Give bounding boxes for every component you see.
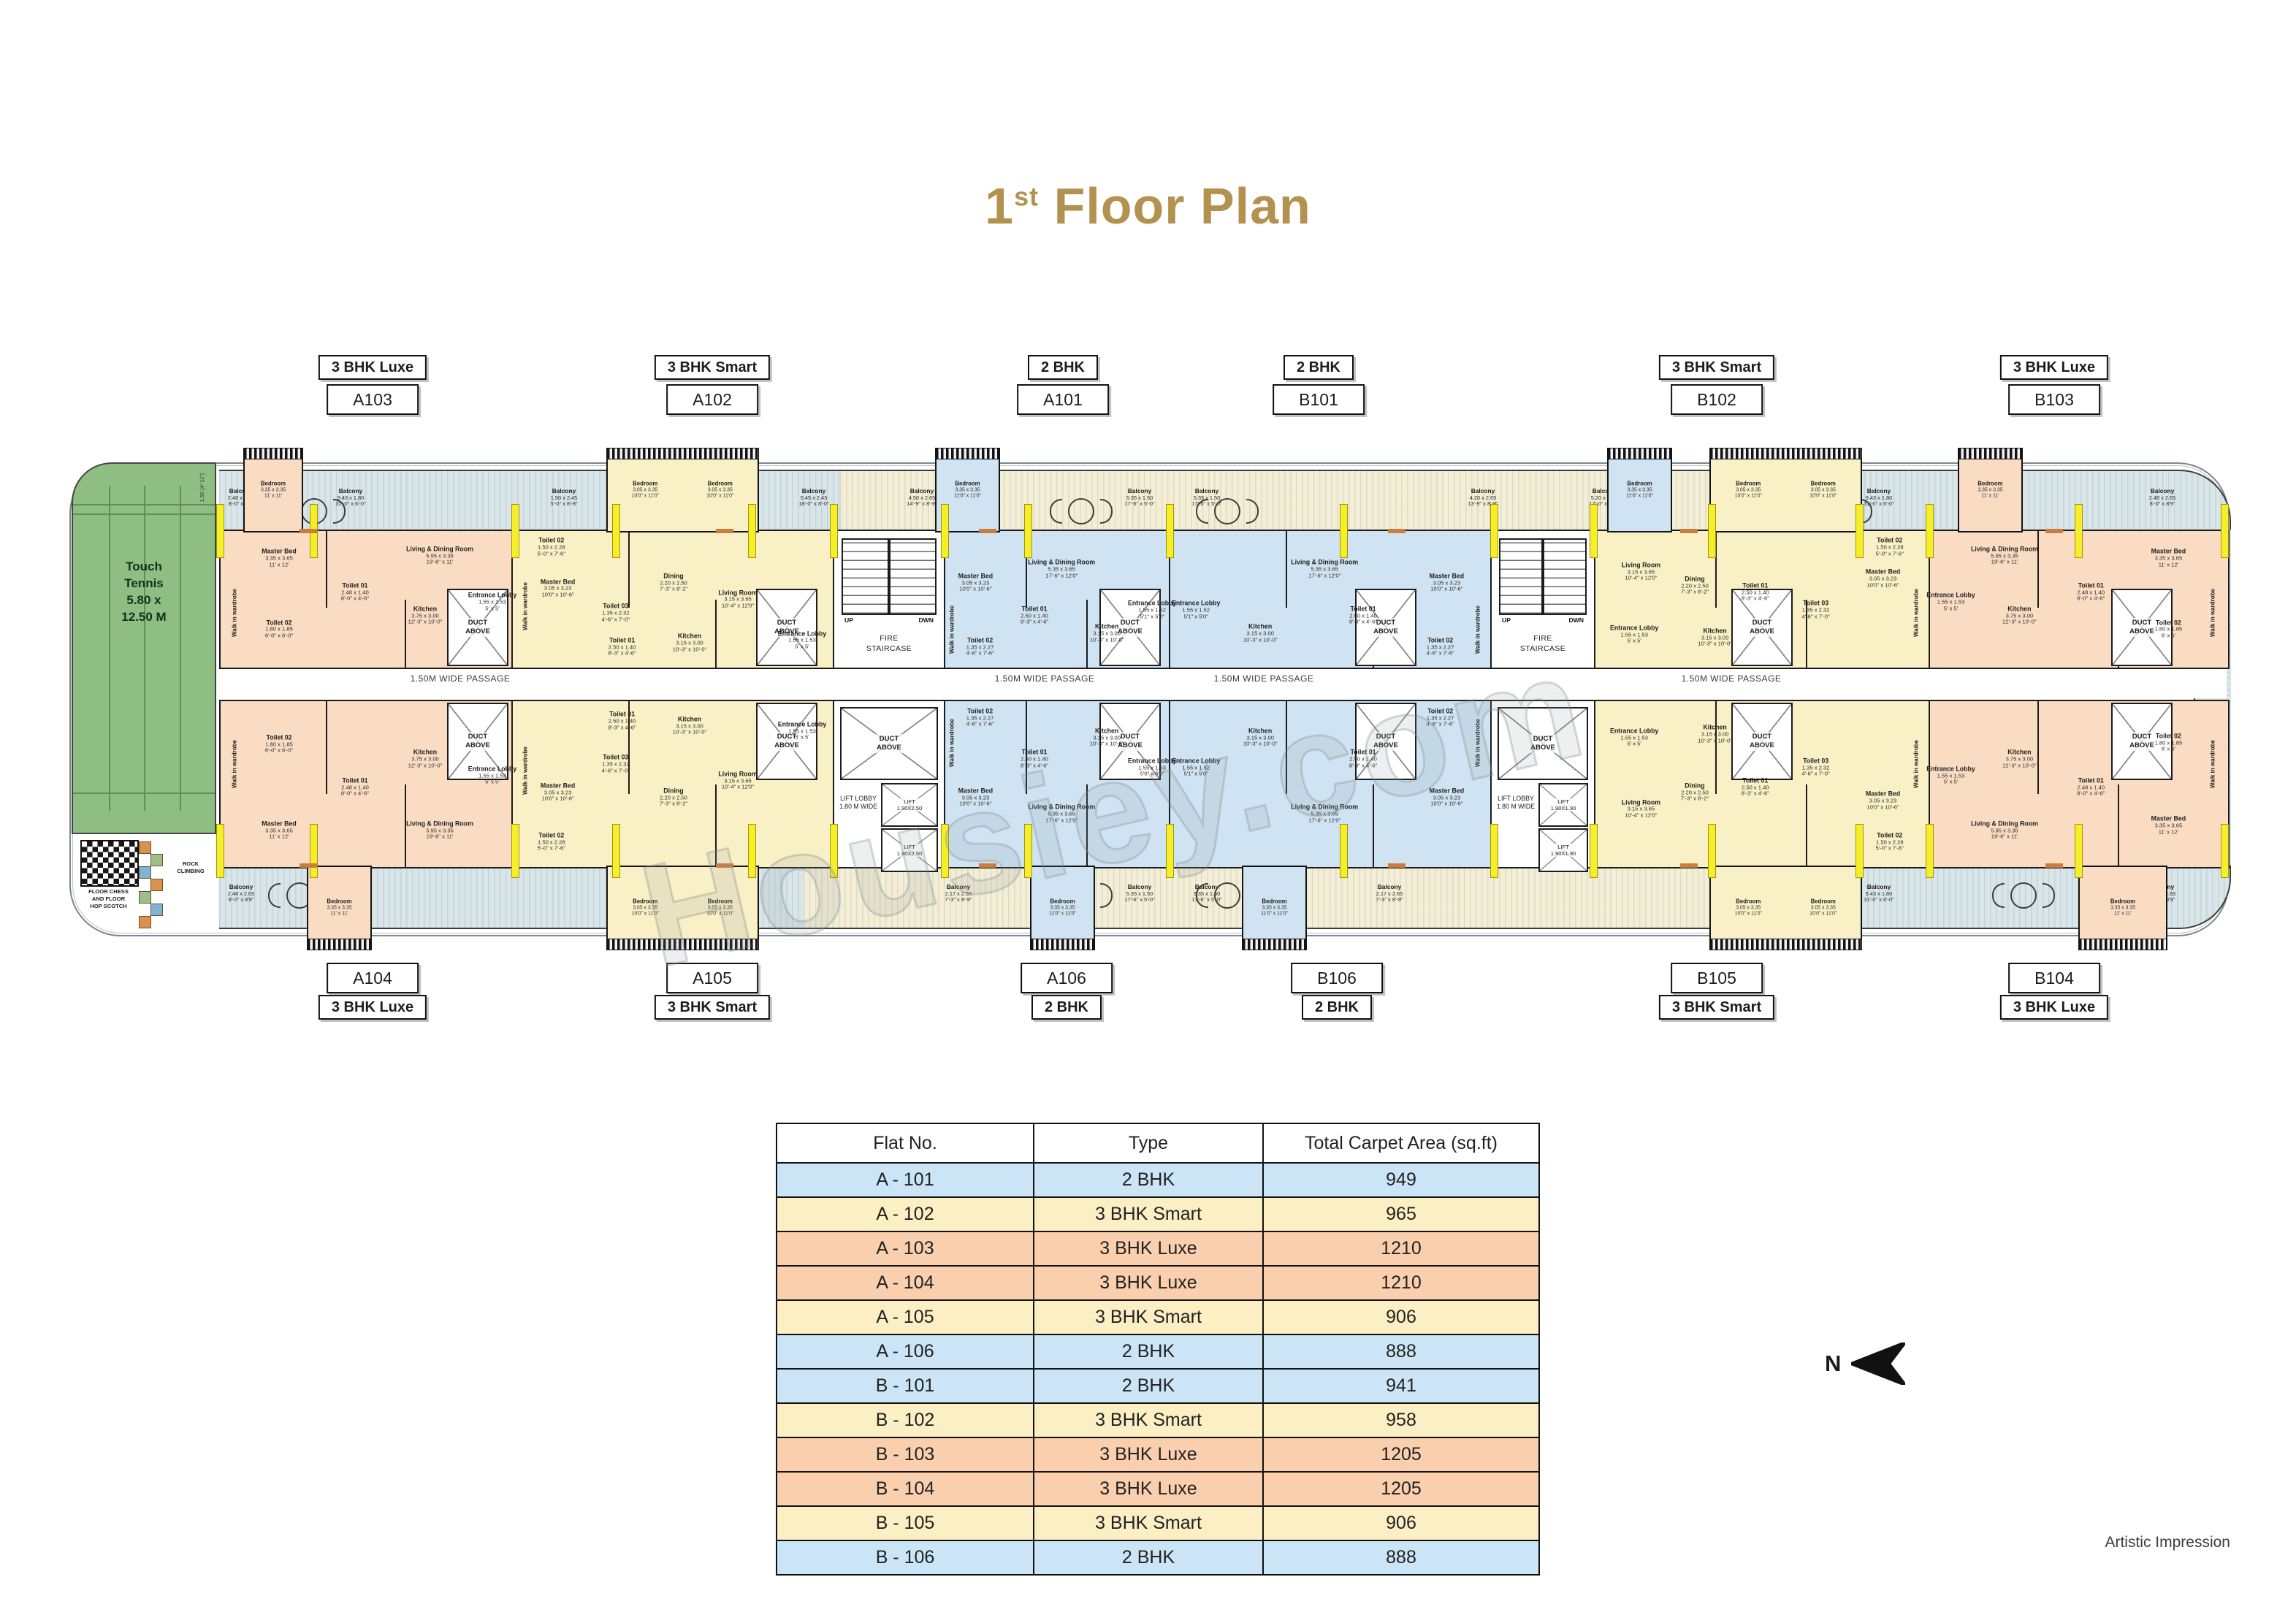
duct-above-box: DUCTABOVE — [1731, 703, 1793, 780]
bedroom-label: Bedroom3.05 x 3.3510'0" x 11'0" — [706, 481, 733, 500]
room-label: Dining2.20 x 2.507'-3" x 8'-2" — [1681, 576, 1709, 595]
bedroom-label: Bedroom3.35 x 3.3511' x 11' — [261, 481, 286, 500]
bedroom-label: Bedroom3.05 x 3.3510'0" x 11'0" — [1735, 481, 1762, 500]
room-label: Living Room3.15 x 3.6510'-4" x 12'0" — [718, 589, 757, 609]
up-label: UP — [843, 616, 855, 624]
balcony-hatch — [307, 939, 372, 950]
room-label: Master Bed3.35 x 3.6511' x 12' — [2151, 816, 2186, 836]
room-label: Toilet 021.35 x 2.274'-6" x 7'-6" — [1426, 638, 1454, 657]
room-label: Toilet 012.50 x 1.408'-3" x 4'-6" — [1021, 749, 1048, 769]
room-label: Walk in wardrobe — [1913, 589, 1920, 637]
yellow-accent-bar — [1926, 504, 1934, 558]
yellow-accent-bar — [1590, 824, 1598, 878]
bedroom-block: Bedroom3.05 x 3.3510'0" x 11'0"Bedroom3.… — [1709, 448, 1862, 532]
bedroom-label: Bedroom3.05 x 3.3510'0" x 11'0" — [632, 899, 659, 917]
flat-unit-B101: Master Bed3.05 x 3.2310'0" x 10'-6"Walk … — [1169, 530, 1493, 669]
yellow-accent-bar — [1856, 824, 1864, 878]
table-cell: A - 103 — [777, 1232, 1034, 1265]
bedroom-label: Bedroom3.35 x 3.3511'0" x 11'0" — [1261, 899, 1288, 917]
balcony-hatch — [1242, 939, 1307, 950]
yellow-accent-bar — [1024, 504, 1032, 558]
bedroom-label: Bedroom3.35 x 3.3511'0" x 11'0" — [1626, 481, 1653, 500]
table-cell: 3 BHK Smart — [1034, 1301, 1264, 1334]
balcony-hatch — [1030, 939, 1095, 950]
balcony-label: Balcony4.50 x 2.6514'-9" x 8'-9" — [907, 488, 937, 508]
table-row: B - 1053 BHK Smart906 — [777, 1507, 1538, 1541]
bedroom-label: Bedroom3.35 x 3.3511'0" x 11'0" — [1049, 899, 1076, 917]
table-header-cell: Flat No. — [777, 1124, 1034, 1162]
room-label: Walk in wardrobe — [1476, 719, 1482, 767]
room-label: Walk in wardrobe — [950, 719, 956, 767]
yellow-accent-bar — [941, 824, 949, 878]
yellow-accent-bar — [216, 504, 224, 558]
balcony-hatch — [935, 448, 1000, 459]
north-label: N — [1825, 1351, 1841, 1377]
table-cell: B - 105 — [777, 1507, 1034, 1540]
room-label: Master Bed3.35 x 3.6511' x 12' — [262, 549, 296, 568]
room-label: Kitchen3.15 x 3.0010'-3" x 10'-0" — [1243, 624, 1278, 644]
table-cell: A - 104 — [777, 1267, 1034, 1299]
room-label: Toilet 031.35 x 2.324'-6" x 7'-0" — [602, 755, 630, 774]
room-label: Toilet 031.35 x 2.324'-6" x 7'-0" — [1801, 757, 1829, 777]
lift-icon: LIFT1.90X2.50 — [881, 828, 938, 872]
balcony-hatch — [606, 939, 759, 950]
room-label: Kitchen3.15 x 3.0010'-3" x 10'-0" — [1698, 627, 1732, 647]
lift-icon: LIFT1.90X2.50 — [881, 783, 938, 827]
room-label: Kitchen3.15 x 3.0010'-3" x 10'-0" — [673, 633, 707, 653]
room-label: Master Bed3.05 x 3.2310'0" x 10'-6" — [1430, 787, 1464, 807]
down-label: DWN — [917, 616, 935, 624]
room-label: Dining2.20 x 2.507'-3" x 8'-2" — [1681, 782, 1709, 802]
balcony-label: Balcony2.48 x 2.658'-0" x 8'9" — [228, 884, 255, 904]
table-cell: 3 BHK Luxe — [1034, 1232, 1264, 1265]
hopscotch-block — [150, 879, 163, 891]
table-cell: B - 103 — [777, 1438, 1034, 1471]
north-arrow-icon — [1851, 1343, 1905, 1385]
bedroom-label: Bedroom3.05 x 3.3510'0" x 11'0" — [706, 899, 733, 917]
orange-accent-bar — [1680, 529, 1698, 533]
balcony-label: Balcony5.35 x 1.5017'-6" x 5'-0" — [1124, 884, 1154, 904]
room-label: Toilet 021.35 x 2.274'-6" x 7'-6" — [1426, 708, 1454, 728]
table-cell: 3 BHK Smart — [1034, 1404, 1264, 1437]
table-cell: 965 — [1264, 1198, 1538, 1231]
passage-label: 1.50M WIDE PASSAGE — [411, 673, 511, 684]
yellow-accent-bar — [2075, 504, 2083, 558]
room-label: Toilet 021.50 x 2.285'-0" x 7'-6" — [538, 833, 565, 852]
table-cell: 1205 — [1264, 1438, 1538, 1471]
duct-above-box: DUCTABOVE — [756, 589, 817, 666]
yellow-accent-bar — [830, 824, 838, 878]
balcony-hatch — [2078, 939, 2167, 950]
room-label: Entrance Lobby1.55 x 1.525'1" x 5'0" — [1128, 600, 1176, 620]
table-cell: A - 102 — [777, 1198, 1034, 1231]
orange-accent-bar — [979, 863, 996, 868]
room-label: Living & Dining Room5.95 x 3.3519'-6" x … — [1971, 821, 2038, 841]
room-label: Entrance Lobby1.55 x 1.535' x 5' — [778, 721, 826, 741]
room-label: Toilet 031.35 x 2.324'-6" x 7'-0" — [602, 603, 630, 623]
room-label: Toilet 021.80 x 1.856' x 6' — [2155, 619, 2183, 639]
bedroom-label: Bedroom3.05 x 3.3510'0" x 11'0" — [1809, 899, 1837, 917]
table-cell: 2 BHK — [1034, 1541, 1264, 1574]
staircase-icon — [842, 538, 937, 615]
room-label: Living Room3.15 x 3.6510'-4" x 12'0" — [718, 771, 757, 791]
table-cell: 906 — [1264, 1507, 1538, 1540]
balcony-seating-icon — [1992, 882, 2055, 909]
room-label: Dining2.20 x 2.507'-3" x 8'-2" — [660, 573, 687, 593]
up-label: UP — [1500, 616, 1512, 624]
orange-accent-bar — [979, 529, 996, 533]
table-cell: 888 — [1264, 1335, 1538, 1368]
yellow-accent-bar — [748, 824, 756, 878]
yellow-accent-bar — [1340, 504, 1348, 558]
table-cell: B - 102 — [777, 1404, 1034, 1437]
balcony-hatch — [243, 448, 303, 459]
table-header-row: Flat No.TypeTotal Carpet Area (sq.ft) — [777, 1124, 1538, 1164]
room-label: Walk in wardrobe — [1476, 606, 1482, 654]
balcony-hatch — [606, 448, 759, 459]
room-label: Dining2.20 x 2.507'-3" x 8'-2" — [660, 787, 687, 807]
floor-chess-board — [80, 840, 139, 887]
yellow-accent-bar — [1490, 504, 1498, 558]
table-cell: 3 BHK Luxe — [1034, 1473, 1264, 1505]
room-label: Master Bed3.05 x 3.2310'0" x 10'-6" — [1430, 573, 1464, 593]
balcony-hatch — [1607, 448, 1672, 459]
table-cell: 2 BHK — [1034, 1335, 1264, 1368]
bedroom-label: Bedroom3.05 x 3.3510'0" x 11'0" — [1735, 899, 1762, 917]
room-label: Toilet 012.50 x 1.408'-3" x 4'-6" — [608, 638, 636, 657]
table-row: A - 1023 BHK Smart965 — [777, 1198, 1538, 1232]
artistic-impression-note: Artistic Impression — [2105, 1534, 2230, 1551]
bedroom-block: Bedroom3.05 x 3.3510'0" x 11'0"Bedroom3.… — [606, 866, 759, 950]
room-label: Kitchen3.15 x 3.0010'-3" x 10'-0" — [1090, 624, 1124, 644]
table-cell: B - 106 — [777, 1541, 1034, 1574]
room-label: Toilet 012.50 x 1.408'-3" x 4'-6" — [1349, 606, 1377, 626]
balcony-label: Balcony2.48 x 2.658'-0" x 8'9" — [2149, 488, 2176, 508]
bedroom-block: Bedroom3.35 x 3.3511' x 11' — [307, 866, 372, 950]
yellow-accent-bar — [830, 504, 838, 558]
table-cell: 3 BHK Luxe — [1034, 1267, 1264, 1299]
yellow-accent-bar — [511, 504, 519, 558]
room-label: Master Bed3.05 x 3.2310'0" x 10'-6" — [541, 782, 575, 802]
core-lift: DUCTABOVELIFT LOBBY1.80 M WIDELIFT1.90X1… — [1490, 700, 1595, 868]
room-label: Master Bed3.05 x 3.2310'0" x 10'-6" — [541, 578, 575, 598]
orange-accent-bar — [2045, 529, 2063, 533]
lift-icon: LIFT1.90X1.90 — [1538, 783, 1588, 827]
room-label: Entrance Lobby1.55 x 1.535' x 5' — [1610, 728, 1658, 748]
table-cell: 2 BHK — [1034, 1370, 1264, 1402]
orange-accent-bar — [716, 529, 733, 533]
court-grid-line — [109, 486, 110, 810]
table-cell: 3 BHK Smart — [1034, 1198, 1264, 1231]
staircase-icon — [1499, 538, 1587, 615]
room-label: Kitchen3.75 x 3.0012'-3" x 10'-0" — [2002, 749, 2037, 769]
room-label: Toilet 021.80 x 1.856'-0" x 6'-0" — [265, 735, 293, 755]
room-label: Entrance Lobby1.55 x 1.535' x 5' — [468, 766, 516, 786]
table-row: B - 1033 BHK Luxe1205 — [777, 1438, 1538, 1473]
passage-label: 1.50M WIDE PASSAGE — [1682, 673, 1782, 684]
table-row: B - 1062 BHK888 — [777, 1541, 1538, 1574]
room-label: Entrance Lobby1.55 x 1.525'1" x 5'0" — [1172, 600, 1220, 620]
orange-accent-bar — [716, 863, 733, 868]
fire-staircase-label: FIRESTAIRCASE — [1492, 634, 1594, 654]
room-label: Toilet 012.50 x 1.408'-3" x 4'-6" — [1742, 778, 1769, 798]
table-cell: 941 — [1264, 1370, 1538, 1402]
table-cell: 958 — [1264, 1404, 1538, 1437]
court-grid-line — [144, 486, 145, 810]
room-label: Master Bed3.35 x 3.6511' x 12' — [2151, 549, 2186, 568]
flat-unit-B106: Master Bed3.05 x 3.2310'0" x 10'-6"Walk … — [1169, 700, 1493, 868]
room-label: Walk in wardrobe — [2210, 740, 2216, 788]
room-label: Toilet 021.35 x 2.274'-6" x 7'-6" — [966, 708, 993, 728]
core-stair: UPDWNFIRESTAIRCASE — [1490, 530, 1595, 669]
table-cell: 1210 — [1264, 1267, 1538, 1299]
court-grid-line — [73, 793, 215, 794]
room-label: Entrance Lobby1.55 x 1.535' x 5' — [468, 592, 516, 612]
yellow-accent-bar — [1590, 504, 1598, 558]
yellow-accent-bar — [1926, 824, 1934, 878]
table-header-cell: Type — [1034, 1124, 1264, 1162]
room-label: Entrance Lobby1.55 x 1.525'1" x 5'0" — [1172, 757, 1220, 777]
table-row: A - 1062 BHK888 — [777, 1335, 1538, 1370]
table-row: A - 1012 BHK949 — [777, 1164, 1538, 1198]
room-label: Living & Dining Room5.95 x 3.3519'-6" x … — [1971, 546, 2038, 565]
bedroom-label: Bedroom3.35 x 3.3511' x 11' — [2110, 899, 2135, 917]
floor-plan-page: 1st Floor Plan 3 BHK LuxeA1033 BHK Smart… — [0, 0, 2296, 1623]
room-label: Living & Dining Room5.35 x 3.6517'-6" x … — [1028, 560, 1095, 579]
duct-above-box: DUCTABOVE — [1355, 589, 1416, 666]
table-row: B - 1043 BHK Luxe1205 — [777, 1473, 1538, 1507]
yellow-accent-bar — [1340, 824, 1348, 878]
duct-above-box: DUCTABOVE — [756, 703, 817, 780]
tennis-court-label: TouchTennis5.80 x12.50 M — [73, 559, 215, 626]
passage-label: 1.50M WIDE PASSAGE — [995, 673, 1095, 684]
table-cell: 949 — [1264, 1164, 1538, 1196]
table-cell: B - 101 — [777, 1370, 1034, 1402]
orange-accent-bar — [2045, 863, 2063, 868]
room-label: Walk in wardrobe — [2210, 589, 2216, 637]
yellow-accent-bar — [748, 504, 756, 558]
room-label: Master Bed3.05 x 3.2310'0" x 10'-6" — [958, 787, 993, 807]
fire-staircase-label: FIRESTAIRCASE — [834, 634, 944, 654]
room-label: Kitchen3.15 x 3.0010'-3" x 10'-0" — [1698, 725, 1732, 744]
room-label: Living & Dining Room5.35 x 3.6517'-6" x … — [1291, 804, 1358, 824]
table-cell: 1205 — [1264, 1473, 1538, 1505]
north-indicator: N — [1825, 1343, 1905, 1385]
core-lift: DUCTABOVELIFT LOBBY1.80 M WIDELIFT1.90X2… — [833, 700, 945, 868]
yellow-accent-bar — [612, 504, 620, 558]
bedroom-block: Bedroom3.35 x 3.3511'0" x 11'0" — [1030, 866, 1095, 950]
yellow-accent-bar — [1490, 824, 1498, 878]
table-cell: 2 BHK — [1034, 1164, 1264, 1196]
table-cell: 906 — [1264, 1301, 1538, 1334]
room-label: Toilet 021.80 x 1.856' x 6' — [2155, 733, 2183, 752]
lift-lobby-label: LIFT LOBBY1.80 M WIDE — [837, 795, 880, 811]
table-row: B - 1012 BHK941 — [777, 1370, 1538, 1404]
flat-unit-A105: Walk in wardrobeToilet 021.50 x 2.285'-0… — [511, 700, 836, 868]
table-row: A - 1033 BHK Luxe1210 — [777, 1232, 1538, 1267]
balcony-hatch — [1709, 448, 1862, 459]
yellow-accent-bar — [612, 824, 620, 878]
yellow-accent-bar — [1166, 504, 1174, 558]
room-label: Toilet 012.48 x 1.408'-0" x 4'-6" — [341, 778, 369, 798]
bedroom-block: Bedroom3.35 x 3.3511' x 11' — [1958, 448, 2023, 532]
room-label: Toilet 021.80 x 1.856'-0" x 6'-0" — [265, 619, 293, 639]
hopscotch-block — [139, 891, 151, 904]
room-label: Walk in wardrobe — [1913, 740, 1920, 788]
dimension-note: 1.50 [4'-11"] — [199, 473, 205, 502]
room-label: Toilet 012.48 x 1.408'-0" x 4'-6" — [2077, 778, 2105, 798]
orange-accent-bar — [1680, 863, 1698, 868]
hopscotch-block — [139, 866, 151, 879]
rock-climbing-label: ROCKCLIMBING — [165, 860, 216, 875]
bedroom-label: Bedroom3.05 x 3.3510'0" x 11'0" — [632, 481, 659, 500]
balcony-label: Balcony2.17 x 2.657'-3" x 8'-9" — [1376, 884, 1403, 904]
room-label: Walk in wardrobe — [232, 740, 239, 788]
bedroom-block: Bedroom3.35 x 3.3511' x 11' — [243, 448, 303, 532]
lift-lobby-label: LIFT LOBBY1.80 M WIDE — [1495, 795, 1537, 811]
orange-accent-bar — [300, 863, 317, 868]
room-label: Toilet 021.50 x 2.285'-0" x 7'-6" — [1876, 538, 1904, 557]
room-label: Kitchen3.15 x 3.0010'-3" x 10'-0" — [1243, 728, 1278, 748]
room-label: Kitchen3.15 x 3.0010'-3" x 10'-0" — [673, 717, 707, 736]
orange-accent-bar — [300, 529, 317, 533]
court-grid-line — [73, 513, 215, 515]
balcony-label: Balcony9.43 x 1.8031'-0" x 6'-0" — [1864, 884, 1893, 904]
down-label: DWN — [1567, 616, 1585, 624]
yellow-accent-bar — [2221, 504, 2229, 558]
hopscotch-block — [139, 841, 151, 854]
bedroom-block: Bedroom3.05 x 3.3510'0" x 11'0"Bedroom3.… — [606, 448, 759, 532]
table-header-cell: Total Carpet Area (sq.ft) — [1264, 1124, 1538, 1162]
bedroom-block: Bedroom3.35 x 3.3511'0" x 11'0" — [1607, 448, 1672, 532]
balcony-label: Balcony2.17 x 2.657'-3" x 8'-9" — [945, 884, 972, 904]
room-label: Living & Dining Room5.35 x 3.6517'-6" x … — [1291, 560, 1358, 579]
room-label: Living & Dining Room5.95 x 3.3519'-6" x … — [406, 821, 473, 841]
room-label: Walk in wardrobe — [522, 582, 529, 630]
duct-above-box: DUCTABOVE — [1498, 707, 1588, 780]
room-label: Toilet 012.50 x 1.408'-3" x 4'-6" — [608, 711, 636, 731]
court-grid-line — [180, 486, 181, 810]
room-label: Toilet 021.50 x 2.285'-0" x 7'-6" — [1876, 833, 1904, 852]
table-cell: 3 BHK Luxe — [1034, 1438, 1264, 1471]
duct-above-box: DUCTABOVE — [840, 707, 938, 780]
yellow-accent-bar — [1024, 824, 1032, 878]
room-label: Master Bed3.05 x 3.2310'0" x 10'-6" — [1866, 791, 1900, 811]
room-label: Living & Dining Room5.95 x 3.3519'-6" x … — [406, 546, 473, 565]
balcony-seating-icon — [1196, 498, 1259, 524]
bedroom-block: Bedroom3.35 x 3.3511' x 11' — [2078, 866, 2167, 950]
balcony-seating-icon — [1050, 498, 1113, 524]
room-label: Walk in wardrobe — [950, 606, 956, 654]
room-label: Toilet 021.35 x 2.274'-6" x 7'-6" — [966, 638, 993, 657]
core-stair: UPDWNFIRESTAIRCASE — [833, 530, 945, 669]
room-label: Toilet 012.50 x 1.408'-3" x 4'-6" — [1021, 606, 1048, 626]
yellow-accent-bar — [310, 824, 318, 878]
room-label: Toilet 012.48 x 1.408'-0" x 4'-6" — [341, 583, 369, 603]
room-label: Entrance Lobby1.55 x 1.535' x 5' — [1926, 766, 1975, 786]
bedroom-label: Bedroom3.35 x 3.3511' x 11' — [327, 899, 351, 917]
table-cell: 3 BHK Smart — [1034, 1507, 1264, 1540]
yellow-accent-bar — [2221, 824, 2229, 878]
room-label: Toilet 031.35 x 2.324'-6" x 7'-0" — [1801, 600, 1829, 620]
yellow-accent-bar — [216, 824, 224, 878]
yellow-accent-bar — [2075, 824, 2083, 878]
room-label: Kitchen3.15 x 3.0010'-3" x 10'-0" — [1090, 728, 1124, 748]
room-label: Entrance Lobby1.55 x 1.535' x 5' — [1610, 625, 1658, 645]
table-cell: A - 101 — [777, 1164, 1034, 1196]
table-cell: A - 106 — [777, 1335, 1034, 1368]
orange-accent-bar — [1388, 863, 1406, 868]
room-label: Master Bed3.05 x 3.2310'0" x 10'-6" — [1866, 569, 1900, 589]
tennis-court: TouchTennis5.80 x12.50 M — [72, 462, 216, 834]
room-label: Living & Dining Room5.35 x 3.6517'-6" x … — [1028, 804, 1095, 824]
room-label: Kitchen3.75 x 3.0012'-3" x 10'-0" — [408, 749, 443, 769]
table-cell: 888 — [1264, 1541, 1538, 1574]
hopscotch-block — [150, 904, 163, 916]
bedroom-label: Bedroom3.35 x 3.3511' x 11' — [1977, 481, 2002, 500]
room-label: Entrance Lobby1.55 x 1.535' x 5' — [778, 630, 826, 650]
balcony-label: Balcony5.35 x 1.5017'-6" x 5'-0" — [1124, 488, 1154, 508]
table-row: A - 1053 BHK Smart906 — [777, 1301, 1538, 1335]
room-label: Living Room3.15 x 3.6510'-4" x 12'0" — [1622, 562, 1660, 582]
bedroom-label: Bedroom3.35 x 3.3511'0" x 11'0" — [954, 481, 981, 500]
yellow-accent-bar — [511, 824, 519, 878]
room-label: Toilet 012.50 x 1.408'-3" x 4'-6" — [1742, 583, 1769, 603]
hopscotch-block — [150, 854, 163, 866]
balcony-hatch — [1709, 939, 1862, 950]
room-label: Toilet 021.50 x 2.285'-0" x 7'-6" — [538, 538, 565, 557]
balcony-hatch — [1958, 448, 2023, 459]
room-label: Walk in wardrobe — [232, 589, 239, 637]
passage-label: 1.50M WIDE PASSAGE — [1214, 673, 1314, 684]
room-label: Master Bed3.05 x 3.2310'0" x 10'-6" — [958, 573, 993, 593]
room-label: Master Bed3.35 x 3.6511' x 12' — [262, 821, 296, 841]
table-cell: A - 105 — [777, 1301, 1034, 1334]
room-label: Toilet 012.50 x 1.408'-3" x 4'-6" — [1349, 749, 1377, 769]
bedroom-block: Bedroom3.35 x 3.3511'0" x 11'0" — [1242, 866, 1307, 950]
yellow-accent-bar — [1856, 504, 1864, 558]
lift-icon: LIFT1.90X1.90 — [1538, 828, 1588, 872]
table-row: B - 1023 BHK Smart958 — [777, 1404, 1538, 1438]
yellow-accent-bar — [1166, 824, 1174, 878]
table-row: A - 1043 BHK Luxe1210 — [777, 1267, 1538, 1301]
yellow-accent-bar — [1708, 504, 1716, 558]
balcony-label: Balcony5.45 x 2.4318'-0" x 8'-0" — [798, 488, 828, 508]
yellow-accent-bar — [1708, 824, 1716, 878]
court-grid-line — [73, 504, 215, 505]
hopscotch-block — [139, 916, 151, 928]
yellow-accent-bar — [941, 504, 949, 558]
bedroom-label: Bedroom3.05 x 3.3510'0" x 11'0" — [1809, 481, 1837, 500]
room-label: Entrance Lobby1.55 x 1.535'0" x 5'0" — [1128, 757, 1176, 777]
room-label: Walk in wardrobe — [522, 746, 529, 795]
room-label: Toilet 012.48 x 1.408'-0" x 4'-6" — [2077, 583, 2105, 603]
room-label: Kitchen3.75 x 3.0012'-3" x 10'-0" — [2002, 606, 2037, 626]
orange-accent-bar — [1388, 529, 1406, 533]
table-cell: 1210 — [1264, 1232, 1538, 1265]
room-label: Entrance Lobby1.55 x 1.535' x 5' — [1926, 592, 1975, 612]
bedroom-block: Bedroom3.05 x 3.3510'0" x 11'0"Bedroom3.… — [1709, 866, 1862, 950]
balcony-label: Balcony1.50 x 2.455'-0" x 8'-8" — [550, 488, 577, 508]
room-label: Kitchen3.75 x 3.0012'-3" x 10'-0" — [408, 606, 443, 626]
room-label: Living Room3.15 x 3.6510'-4" x 12'0" — [1622, 799, 1660, 819]
table-cell: B - 104 — [777, 1473, 1034, 1505]
flats-table: Flat No.TypeTotal Carpet Area (sq.ft)A -… — [776, 1123, 1540, 1576]
